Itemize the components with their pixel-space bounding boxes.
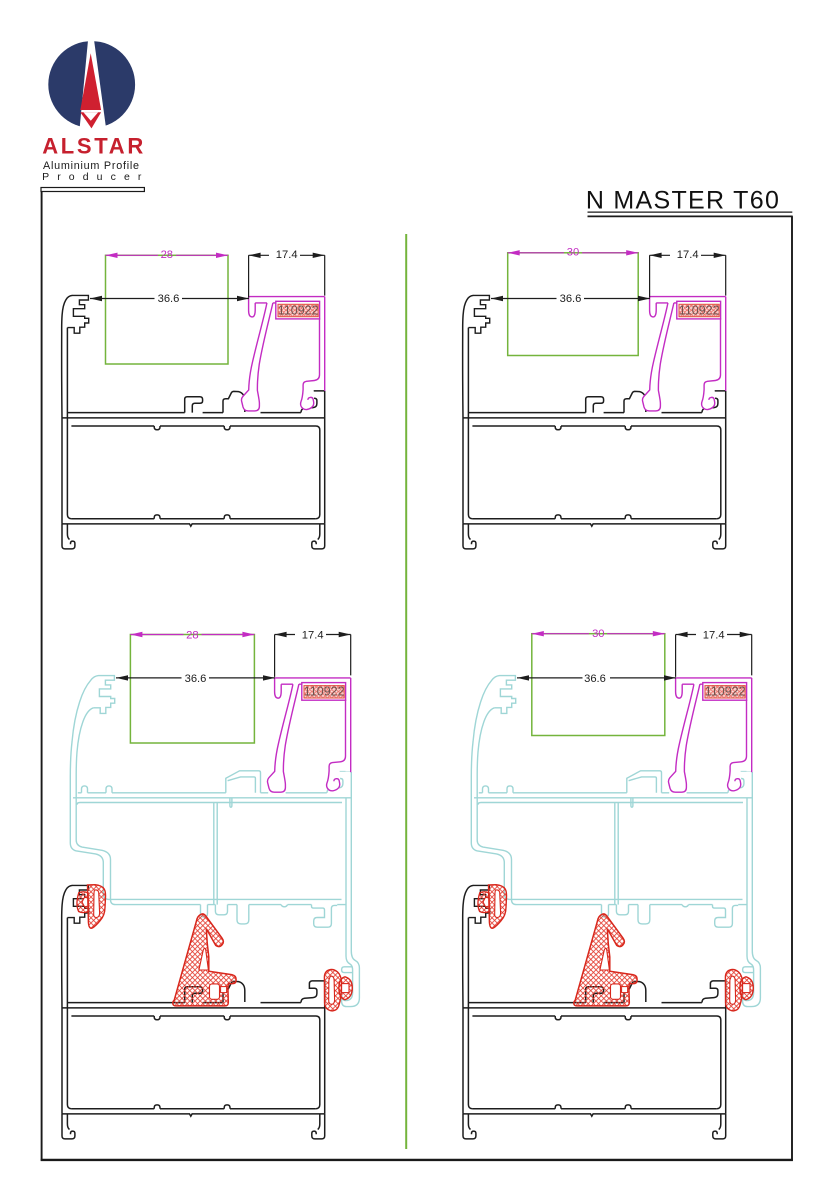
svg-text:36.6: 36.6: [185, 673, 207, 685]
svg-text:17.4: 17.4: [703, 629, 725, 641]
svg-text:36.6: 36.6: [158, 293, 180, 305]
svg-text:36.6: 36.6: [584, 673, 606, 685]
svg-text:30: 30: [567, 247, 579, 259]
svg-text:N MASTER T60: N MASTER T60: [586, 187, 780, 215]
svg-text:17.4: 17.4: [302, 629, 324, 641]
svg-text:Producer: Producer: [42, 171, 149, 183]
svg-text:28: 28: [161, 249, 173, 261]
svg-text:ALSTAR: ALSTAR: [42, 134, 146, 159]
svg-text:30: 30: [592, 628, 604, 640]
svg-text:28: 28: [186, 629, 198, 641]
svg-text:17.4: 17.4: [276, 249, 298, 261]
svg-text:36.6: 36.6: [560, 293, 582, 305]
svg-text:17.4: 17.4: [677, 249, 699, 261]
